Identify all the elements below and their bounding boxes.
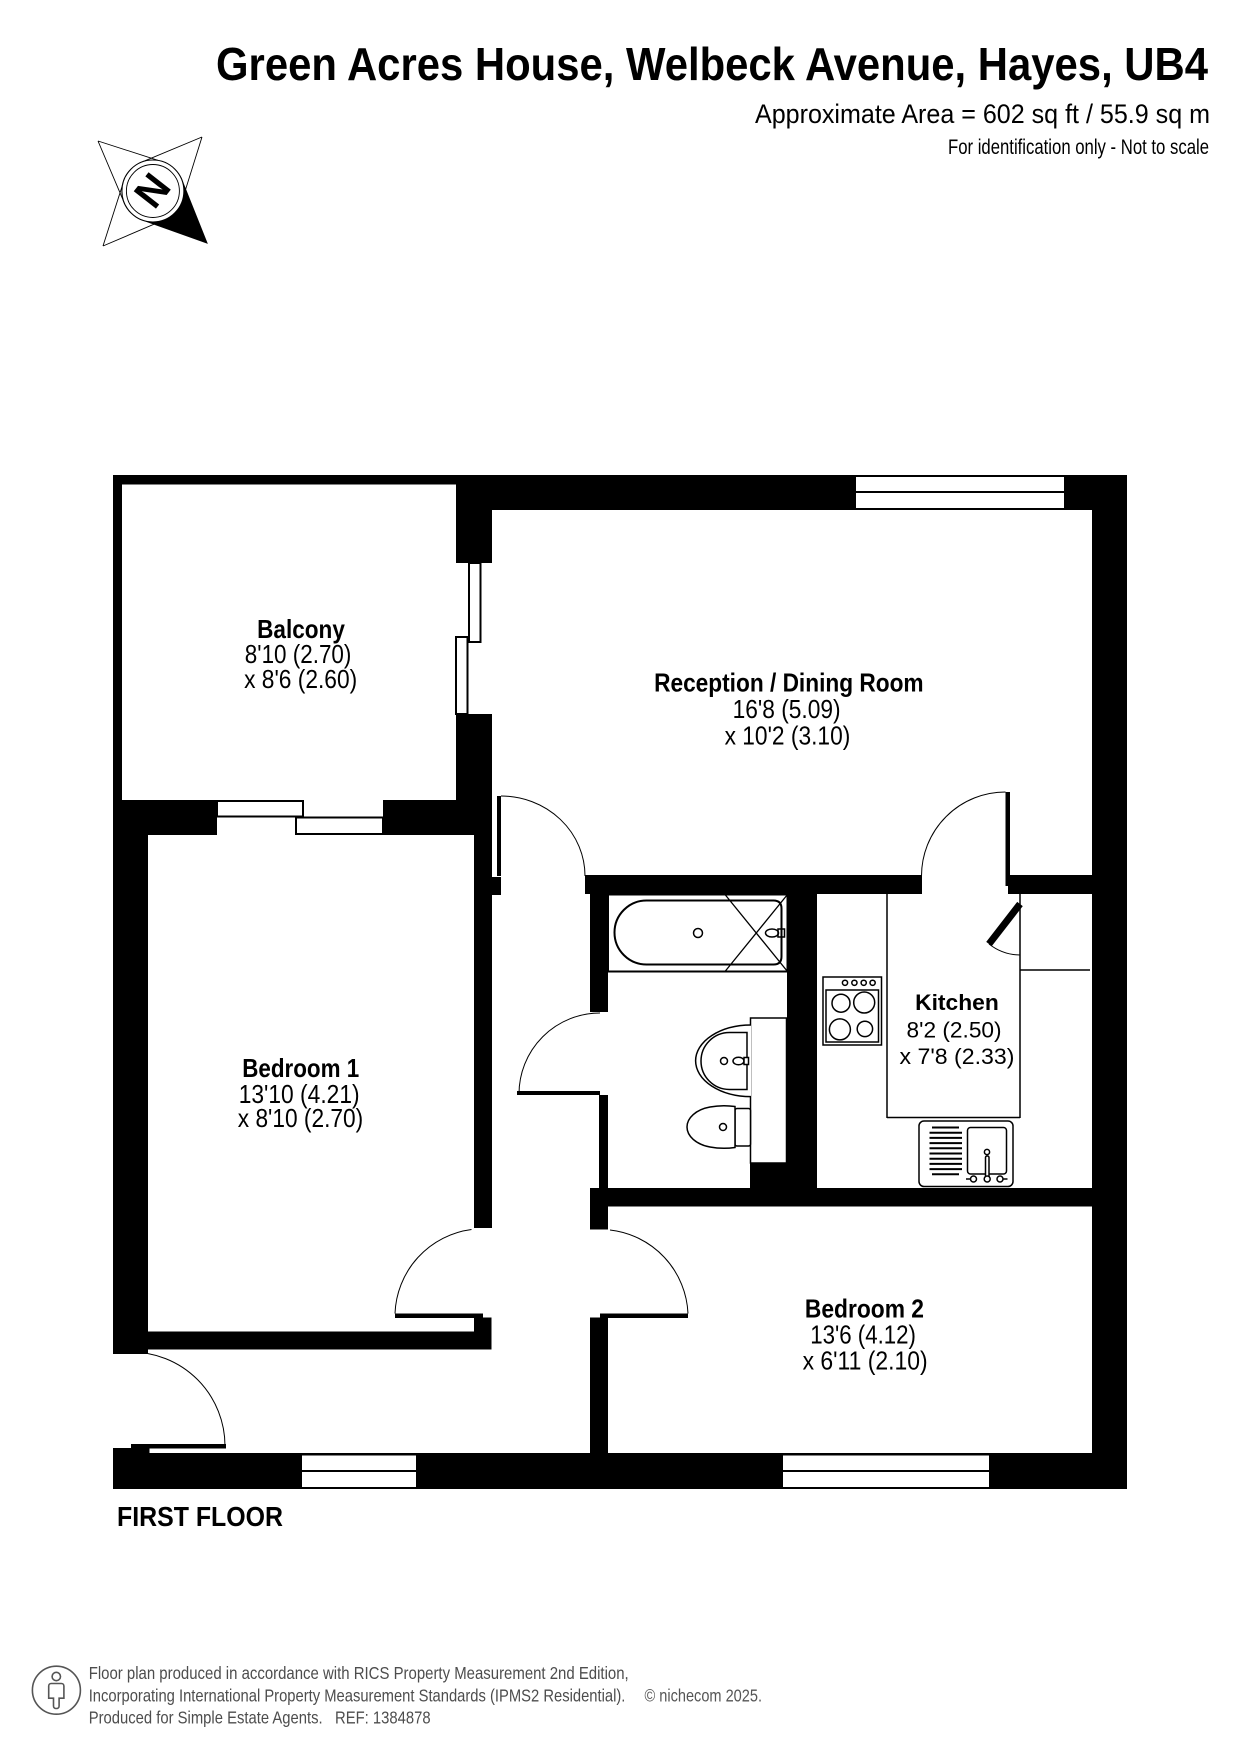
svg-text:Floor plan produced in accorda: Floor plan produced in accordance with R… bbox=[89, 1663, 629, 1683]
svg-text:Reception / Dining Room: Reception / Dining Room bbox=[654, 668, 924, 698]
svg-text:x 10'2 (3.10): x 10'2 (3.10) bbox=[725, 721, 851, 751]
svg-text:Green Acres House, Welbeck Ave: Green Acres House, Welbeck Avenue, Hayes… bbox=[216, 38, 1208, 90]
svg-text:8'2 (2.50): 8'2 (2.50) bbox=[907, 1018, 1002, 1043]
svg-text:x 8'6 (2.60): x 8'6 (2.60) bbox=[244, 664, 357, 694]
svg-text:Incorporating International Pr: Incorporating International Property Mea… bbox=[89, 1685, 626, 1705]
svg-text:Produced for Simple Estate Age: Produced for Simple Estate Agents. REF: … bbox=[89, 1708, 431, 1728]
svg-text:16'8 (5.09): 16'8 (5.09) bbox=[733, 694, 841, 724]
svg-text:For identification only - Not: For identification only - Not to scale bbox=[948, 135, 1209, 159]
svg-text:x 6'11 (2.10): x 6'11 (2.10) bbox=[803, 1346, 928, 1376]
svg-text:x 7'8 (2.33): x 7'8 (2.33) bbox=[900, 1044, 1015, 1069]
svg-text:x 8'10 (2.70): x 8'10 (2.70) bbox=[238, 1103, 363, 1133]
svg-text:© nichecom 2025.: © nichecom 2025. bbox=[645, 1685, 763, 1705]
svg-text:FIRST FLOOR: FIRST FLOOR bbox=[117, 1501, 283, 1532]
svg-text:Kitchen: Kitchen bbox=[915, 990, 999, 1015]
svg-text:Approximate Area = 602 sq ft /: Approximate Area = 602 sq ft / 55.9 sq m bbox=[755, 99, 1210, 129]
